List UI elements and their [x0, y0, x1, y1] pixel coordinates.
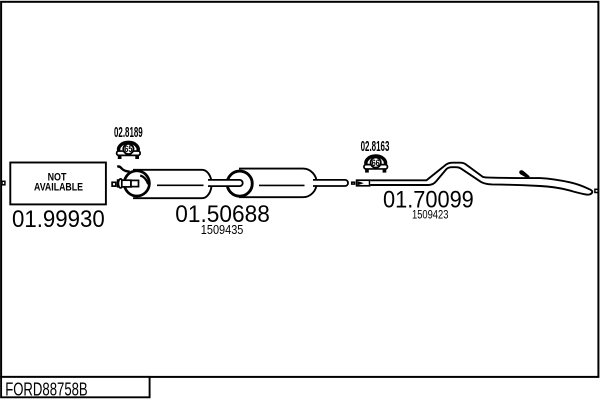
svg-text:1509423: 1509423 [412, 207, 449, 221]
svg-text:02.8189: 02.8189 [114, 125, 143, 141]
svg-text:AVAILABLE: AVAILABLE [34, 181, 83, 193]
svg-text:66: 66 [372, 158, 380, 168]
svg-text:02.8163: 02.8163 [361, 139, 390, 155]
svg-text:1509435: 1509435 [201, 222, 244, 237]
svg-text:65: 65 [124, 144, 132, 154]
svg-text:FORD88758B: FORD88758B [5, 380, 88, 400]
svg-text:01.99930: 01.99930 [12, 206, 105, 233]
